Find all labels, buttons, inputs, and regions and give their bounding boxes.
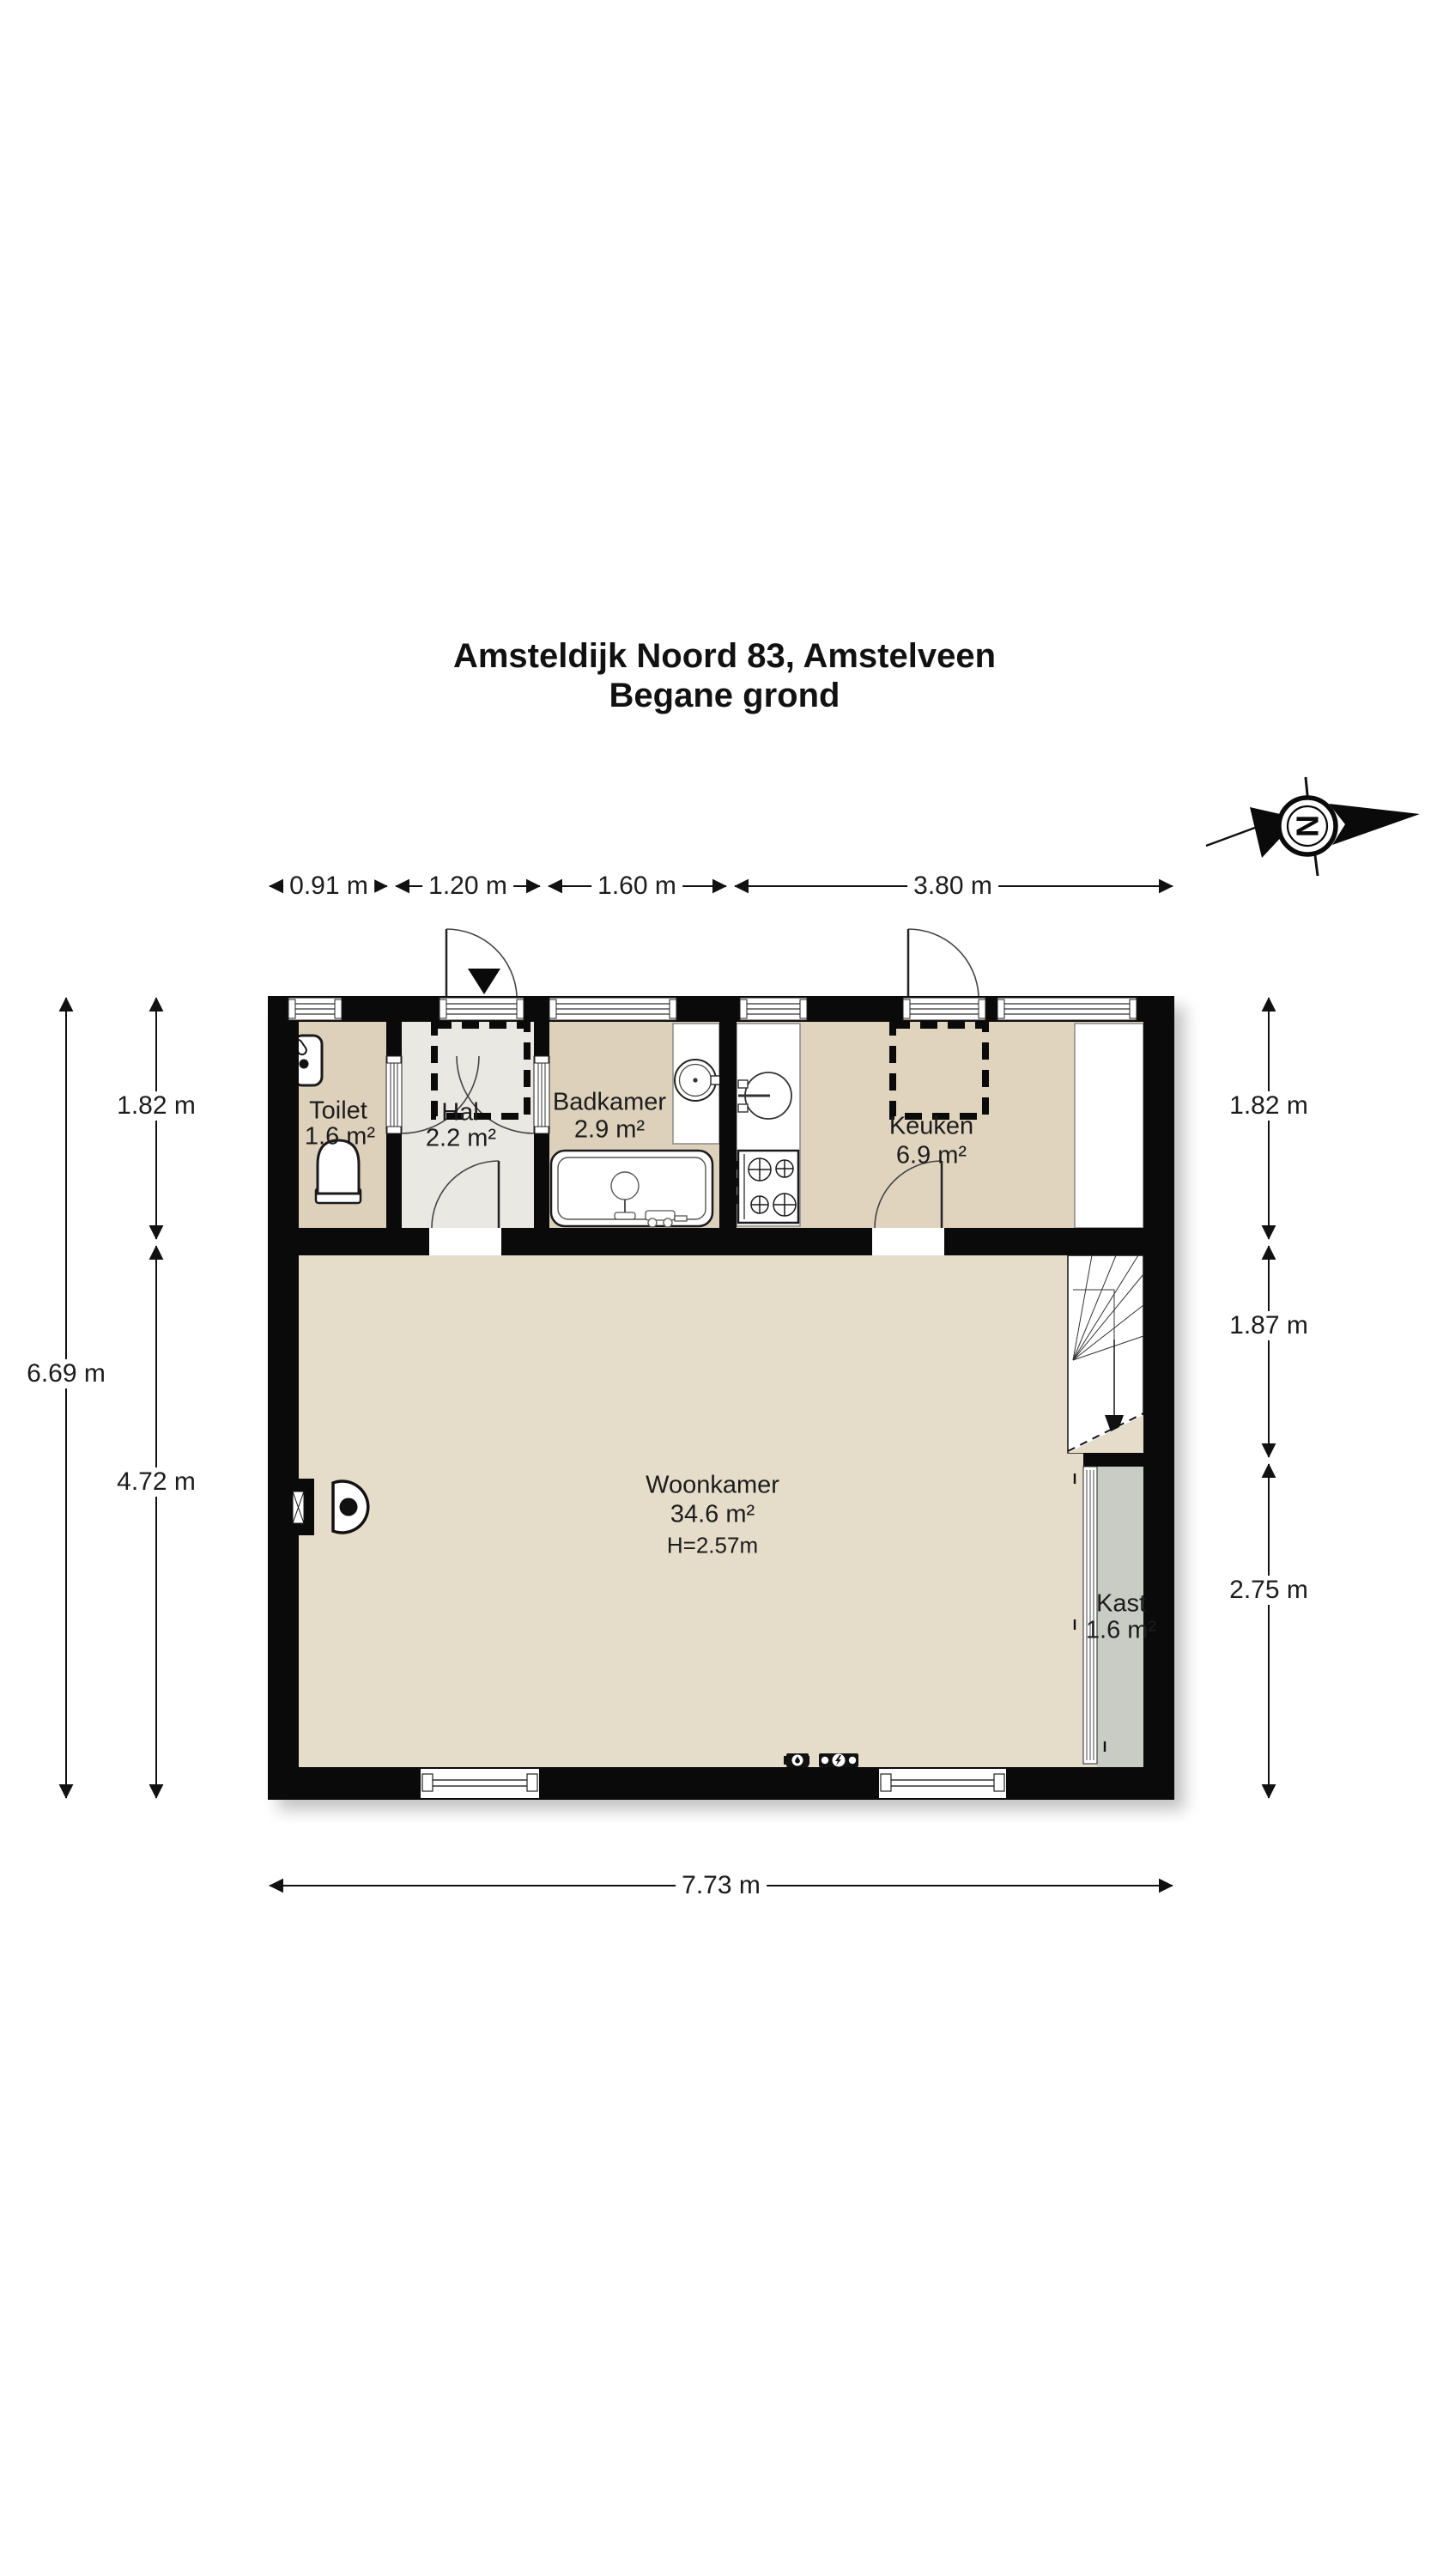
window-icon: [997, 998, 1137, 1020]
glazed-door-panel-icon: [534, 1056, 549, 1133]
badkamer-label: Badkamer: [553, 1089, 666, 1117]
folding-door-icon: [1083, 1467, 1097, 1764]
glazed-door-panel-icon: [386, 1056, 402, 1133]
badkamer-area: 2.9 m²: [574, 1116, 645, 1145]
dim-right-keuken: 1.82 m: [1223, 1091, 1314, 1121]
window-icon: [549, 998, 676, 1020]
wall-left: [268, 996, 299, 1800]
dim-left-total: 6.69 m: [21, 1359, 112, 1388]
front-door-sill: [440, 998, 524, 1020]
kast-area: 1.6 m²: [1086, 1617, 1156, 1645]
dim-bottom-total: 7.73 m: [676, 1871, 767, 1900]
woonkamer-area: 34.6 m²: [670, 1501, 755, 1529]
hal-area: 2.2 m²: [426, 1125, 496, 1153]
window-icon: [740, 998, 807, 1020]
toilet-label: Toilet: [309, 1097, 367, 1126]
compass-north-arrow-icon: N: [1206, 777, 1420, 876]
electricity-meter-icon: [819, 1753, 858, 1767]
kitchen-cupboard: [1075, 1024, 1143, 1228]
window-icon: [288, 998, 342, 1020]
stairs: [1068, 1255, 1143, 1453]
dim-top-badkamer: 1.60 m: [591, 872, 682, 901]
keuken-label: Keuken: [889, 1113, 973, 1141]
front-door: [446, 929, 517, 996]
dim-top-toilet: 0.91 m: [283, 872, 374, 901]
utility-meters: [784, 1753, 858, 1767]
floorplan-drawing: N: [0, 0, 1449, 2576]
woonkamer-label: Woonkamer: [646, 1472, 779, 1500]
dim-top-keuken: 3.80 m: [907, 872, 998, 901]
entrance-arrow-icon: [468, 969, 500, 994]
keuken-area: 6.9 m²: [896, 1142, 967, 1170]
kast-label: Kast: [1096, 1590, 1146, 1619]
dim-right-stairs: 1.87 m: [1223, 1311, 1314, 1340]
window-icon: [421, 1769, 539, 1798]
bathtub-drain-icon: [611, 1172, 639, 1200]
kitchen-door-sill: [903, 998, 985, 1020]
dim-left-upper: 1.82 m: [111, 1091, 202, 1121]
window-icon: [879, 1769, 1006, 1798]
dim-left-lower: 4.72 m: [111, 1467, 202, 1497]
dim-top-hal: 1.20 m: [422, 872, 513, 901]
toilet-area: 1.6 m²: [305, 1123, 375, 1151]
water-meter-icon: [784, 1753, 809, 1767]
kitchen-back-door: [908, 929, 979, 996]
wall-bottom: [268, 1767, 1174, 1800]
floorplan-page: Amsteldijk Noord 83, Amstelveen Begane g…: [0, 0, 1449, 2576]
dim-right-kast: 2.75 m: [1223, 1576, 1314, 1605]
woonkamer-height: H=2.57m: [667, 1533, 758, 1559]
hal-label: Hal: [441, 1099, 479, 1127]
compass-letter: N: [1290, 815, 1325, 837]
wall-right: [1143, 996, 1174, 1800]
